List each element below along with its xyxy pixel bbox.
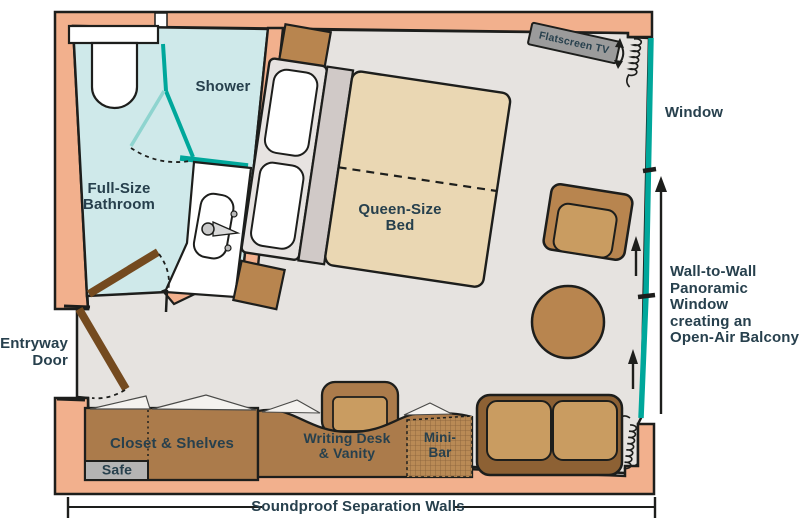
nightstand	[233, 261, 284, 309]
mattress	[324, 70, 511, 287]
faucet-handle-icon	[202, 223, 214, 235]
label-shower: Shower	[195, 79, 250, 95]
armchair	[542, 183, 633, 261]
sofa	[477, 395, 622, 475]
window-extent-arrow	[655, 176, 667, 414]
label-mini-bar: Mini- Bar	[424, 430, 456, 460]
queen-bed	[241, 58, 511, 288]
tap-icon	[231, 211, 237, 217]
label-closet-shelves: Closet & Shelves	[110, 436, 234, 452]
sofa-cushion	[553, 401, 617, 460]
label-writing-desk: Writing Desk & Vanity	[303, 431, 390, 461]
label-soundproof-walls: Soundproof Separation Walls	[251, 499, 465, 515]
label-entryway-door: Entryway Door	[0, 335, 68, 369]
tap-icon	[225, 245, 231, 251]
label-queen-size-bed: Queen-Size Bed	[358, 202, 441, 234]
label-panoramic-window: Wall-to-Wall Panoramic Window creating a…	[670, 264, 800, 347]
sofa-cushion	[487, 401, 551, 460]
stateroom-floor-plan: Shower Full-Size Bathroom Queen-Size Bed…	[0, 0, 800, 530]
label-safe: Safe	[102, 463, 132, 478]
label-window: Window	[665, 105, 723, 121]
round-table	[532, 286, 604, 358]
label-full-size-bathroom: Full-Size Bathroom	[83, 181, 155, 213]
